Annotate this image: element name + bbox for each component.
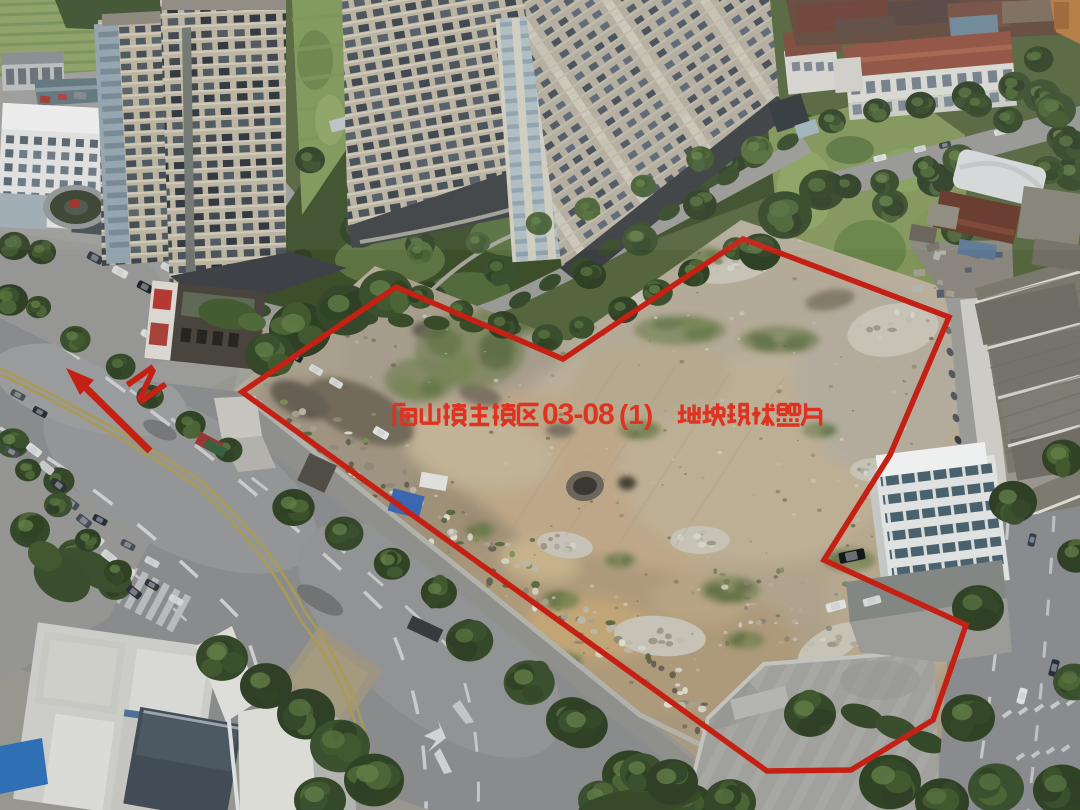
svg-text:03-08: 03-08: [542, 398, 614, 431]
svg-text:(1): (1): [619, 399, 653, 430]
